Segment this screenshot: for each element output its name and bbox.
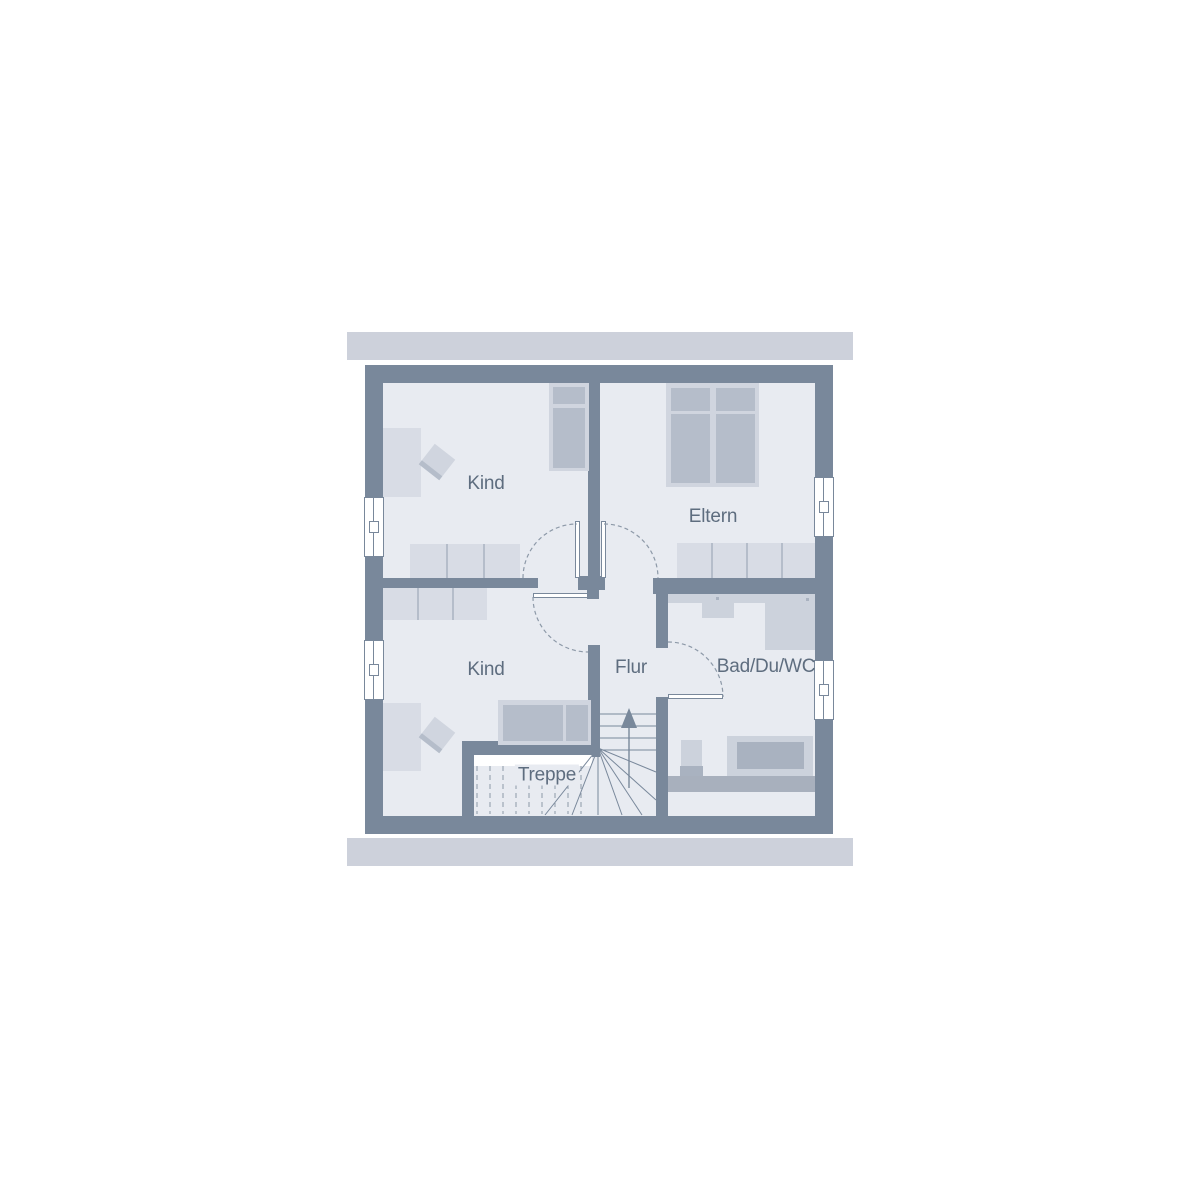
door-leaf-eltern xyxy=(601,521,606,578)
bed-kindtop-pillow xyxy=(553,387,585,404)
room-label-kind-bottom: Kind xyxy=(467,659,504,681)
window-handle xyxy=(819,684,829,696)
wardrobe-divider xyxy=(781,543,783,578)
wardrobe-kindtop xyxy=(410,544,520,578)
roof-band-bottom xyxy=(347,838,853,866)
bed-eltern-mattress-left xyxy=(671,414,710,483)
wardrobe-divider xyxy=(417,588,419,620)
window-kindtop-left xyxy=(364,497,384,557)
wardrobe-kindbottom xyxy=(383,588,487,620)
bathtub-inner xyxy=(737,742,804,769)
bed-eltern-pillow-right xyxy=(716,388,755,411)
wardrobe-divider xyxy=(711,543,713,578)
floor-plan-canvas: Kind Eltern Kind Flur Bad/Du/WC Treppe xyxy=(0,0,1200,1200)
wall-center-door-post xyxy=(578,576,605,590)
wall-stair-vertical xyxy=(462,755,474,816)
bed-kindbottom-mattress xyxy=(503,705,563,741)
wardrobe-divider xyxy=(483,544,485,578)
desk-kindtop xyxy=(383,428,421,497)
wall-flur-bad-upper xyxy=(656,578,668,648)
sink-faucet-dot xyxy=(716,597,719,600)
door-leaf-kindbottom xyxy=(533,593,588,598)
outer-wall-bottom xyxy=(365,816,833,834)
outer-wall-right xyxy=(815,365,833,834)
room-label-kind-top: Kind xyxy=(467,473,504,495)
shower-head-dot xyxy=(806,598,809,601)
wall-flur-bad-lower xyxy=(656,697,668,816)
room-label-bad-du-wc: Bad/Du/WC xyxy=(717,656,816,678)
window-eltern-right xyxy=(814,477,834,537)
wardrobe-eltern xyxy=(677,543,815,578)
wardrobe-divider xyxy=(452,588,454,620)
bed-kindbottom-pillow xyxy=(566,705,588,741)
wc-base xyxy=(680,766,703,776)
door-leaf-kindtop xyxy=(575,521,580,578)
door-leaf-bad xyxy=(668,694,723,699)
window-handle xyxy=(369,521,379,533)
knee-wall-bad xyxy=(668,776,815,792)
wc-cistern xyxy=(681,740,702,766)
wall-eltern-bad xyxy=(653,578,815,594)
room-label-eltern: Eltern xyxy=(689,506,737,528)
bath-shower xyxy=(765,594,815,650)
outer-wall-top xyxy=(365,365,833,383)
wall-center-door-stub xyxy=(587,590,599,599)
wall-kindtop-eltern xyxy=(588,383,600,577)
bed-kindtop-mattress xyxy=(553,408,585,468)
wardrobe-divider xyxy=(446,544,448,578)
bed-eltern-mattress-right xyxy=(716,414,755,483)
outer-wall-left xyxy=(365,365,383,834)
roof-band-top xyxy=(347,332,853,360)
window-bad-right xyxy=(814,660,834,720)
bed-eltern-pillow-left xyxy=(671,388,710,411)
window-kindbottom-left xyxy=(364,640,384,700)
window-handle xyxy=(369,664,379,676)
window-handle xyxy=(819,501,829,513)
room-label-treppe: Treppe xyxy=(515,765,579,786)
wall-kindtop-kindbottom xyxy=(383,578,538,588)
wardrobe-divider xyxy=(746,543,748,578)
desk-kindbottom xyxy=(383,703,421,771)
room-label-flur: Flur xyxy=(615,657,647,679)
